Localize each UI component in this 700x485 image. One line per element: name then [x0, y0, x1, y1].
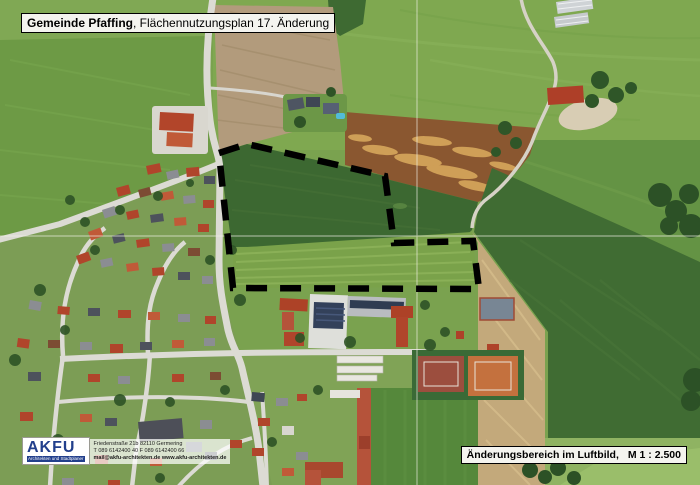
logo-phone: T 089 6142400 40 F 089 6142400 66 [94, 448, 227, 455]
north-farm [152, 106, 208, 154]
barn-roof [159, 112, 194, 132]
logo-name: AKFU [27, 439, 85, 456]
akfu-logo: AKFU Architekten und Stadtplaner [22, 437, 90, 465]
map-scale: M 1 : 2.500 [628, 449, 681, 461]
logo-contact-info: Friedenstraße 21b 82110 Germering T 089 … [90, 439, 231, 464]
barn-roof [547, 85, 584, 104]
logo-tagline: Architekten und Stadtplaner [27, 456, 85, 462]
swimming-pool [336, 113, 345, 119]
logo-web: mail@akfu-architekten.de www.akfu-archit… [94, 455, 227, 462]
gray-building [480, 298, 514, 320]
architect-logo-block: AKFU Architekten und Stadtplaner Frieden… [22, 437, 230, 465]
aerial-map [0, 0, 700, 485]
plan-title-box: Gemeinde Pfaffing, Flächennutzungsplan 1… [21, 13, 335, 33]
plan-sheet: Gemeinde Pfaffing, Flächennutzungsplan 1… [0, 0, 700, 485]
plan-title: , Flächennutzungsplan 17. Änderung [133, 16, 329, 30]
municipality-name: Gemeinde Pfaffing [27, 16, 133, 30]
area-label: Änderungsbereich im Luftbild, [467, 449, 619, 461]
logo-address: Friedenstraße 21b 82110 Germering [94, 441, 227, 448]
tennis-courts [412, 350, 524, 400]
scale-box: Änderungsbereich im Luftbild,M 1 : 2.500 [461, 446, 687, 464]
